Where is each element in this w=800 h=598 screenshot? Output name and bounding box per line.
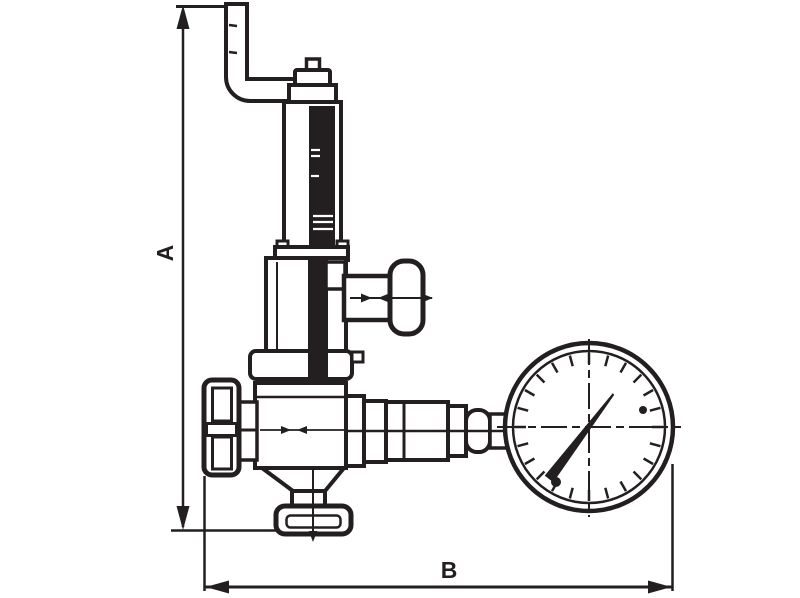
gauge-connection [346, 396, 512, 466]
inlet-connection [204, 380, 257, 475]
inlet-cap-slot-top [213, 388, 232, 421]
gauge-limit-dot [639, 406, 647, 414]
upper-flange-tab [352, 352, 363, 362]
valve-technical-drawing: A B [0, 0, 800, 598]
valve-body [255, 383, 346, 468]
relief-pipe [226, 4, 296, 101]
bottom-outlet [262, 466, 351, 542]
centerline-arrow [423, 294, 433, 302]
dim-a-arrow-up [177, 5, 190, 29]
body-cone [262, 468, 344, 491]
upper-flange-plate [250, 351, 352, 379]
dim-b-arrow-right [648, 581, 672, 594]
gauge-needle-counterweight [551, 477, 561, 487]
pressure-gauge [497, 339, 681, 517]
adjusting-cap [289, 59, 336, 104]
dimension-b-label: B [441, 557, 458, 583]
pipe-weld-mark [229, 52, 237, 53]
inlet-cap-rib [207, 424, 237, 436]
dim-a-arrow-down [177, 506, 190, 530]
pipe-weld-mark [229, 25, 237, 26]
drawing-canvas: A B [0, 0, 800, 598]
inlet-cap-slot-bottom [213, 437, 232, 469]
spring-housing [275, 102, 348, 260]
dim-b-arrow-left [206, 581, 230, 594]
dimension-a-label: A [152, 245, 178, 262]
